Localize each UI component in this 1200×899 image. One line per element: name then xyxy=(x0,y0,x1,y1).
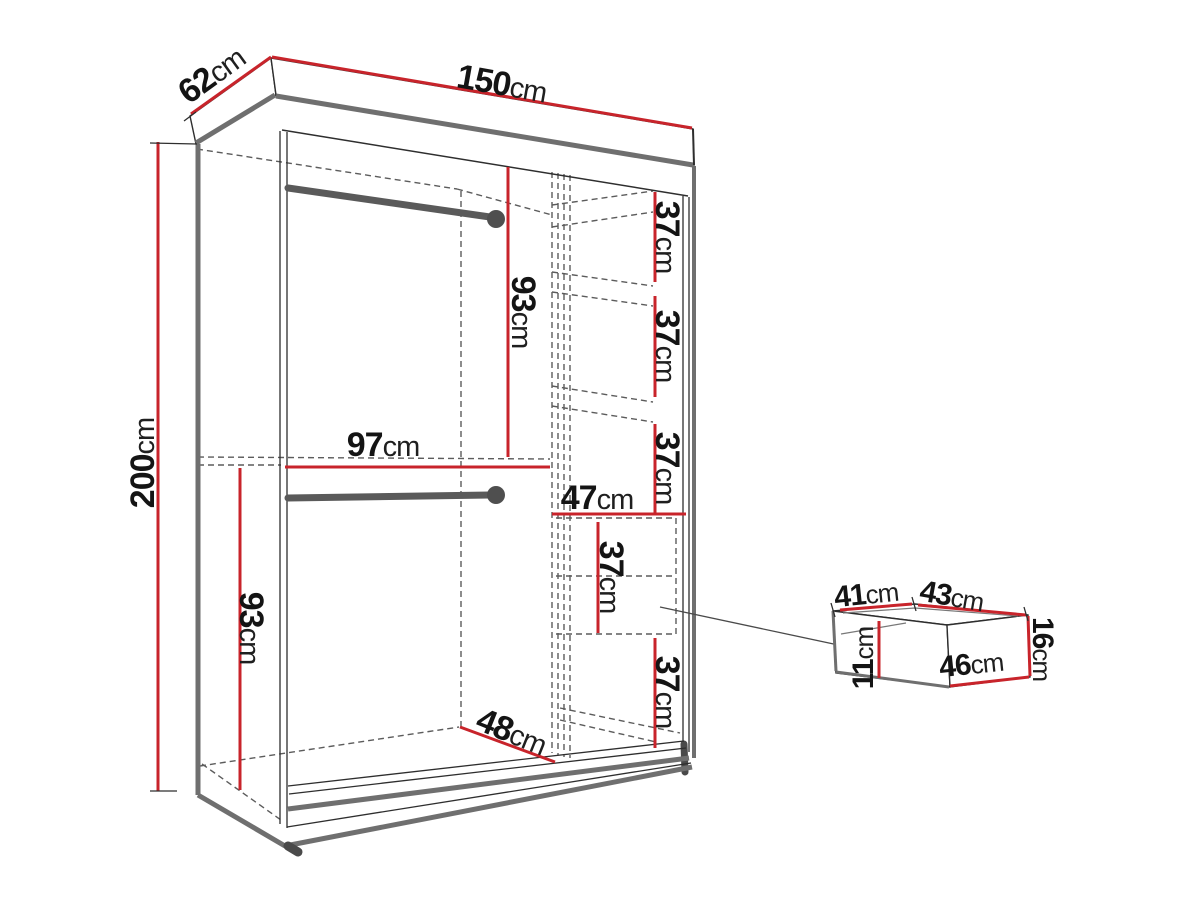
bottom-plinth xyxy=(285,741,692,852)
diagram-canvas: 62cm 150cm 200cm 93cm 97cm 93cm 37cm 37c… xyxy=(0,0,1200,899)
label-upper-93: 93cm xyxy=(504,276,542,349)
label-width-47: 47cm xyxy=(561,479,634,517)
pointer-line xyxy=(660,607,843,646)
hanging-rail-lower xyxy=(288,486,505,504)
label-bottom-37: 37cm xyxy=(648,656,686,729)
label-shelf-37-2: 37cm xyxy=(648,310,686,383)
label-drawer-37: 37cm xyxy=(592,541,630,614)
hanging-rail-upper xyxy=(288,188,505,228)
dimension-lines xyxy=(158,57,692,791)
label-lower-93: 93cm xyxy=(232,592,270,665)
wardrobe-dimension-diagram: 62cm 150cm 200cm 93cm 97cm 93cm 37cm 37c… xyxy=(0,0,1200,899)
shelf-lines xyxy=(552,191,653,422)
label-height-200: 200cm xyxy=(124,418,162,508)
label-shelf-37-3: 37cm xyxy=(648,432,686,505)
label-width-97: 97cm xyxy=(347,426,420,464)
left-foot xyxy=(288,846,298,852)
crown-top-slab xyxy=(190,58,694,165)
label-floor-48: 48cm xyxy=(471,701,552,763)
left-side-panel xyxy=(198,131,287,846)
label-drawer-11: 11cm xyxy=(847,627,880,689)
label-drawer-16: 16cm xyxy=(1026,617,1059,681)
label-shelf-37-1: 37cm xyxy=(648,201,686,274)
